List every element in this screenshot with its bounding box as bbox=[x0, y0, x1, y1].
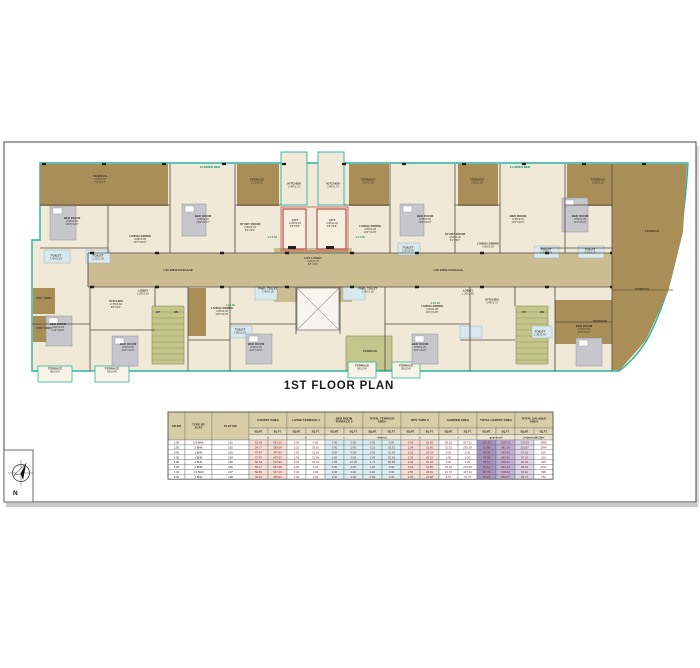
label-text: 102 bbox=[228, 446, 233, 450]
label-text: 1 BHK bbox=[194, 455, 202, 459]
label-text: DN bbox=[540, 310, 544, 314]
label-text: 1.5 BHK bbox=[193, 470, 204, 474]
north-compass: N bbox=[4, 450, 34, 502]
label-text: SQ.MT. bbox=[368, 431, 377, 434]
label-text: 33.91 bbox=[312, 460, 319, 464]
label-text: 616 bbox=[541, 455, 546, 459]
label-text: 463.39 bbox=[501, 455, 510, 459]
label-text: 0.00 bbox=[313, 470, 319, 474]
label-text: 1.50X2.40 bbox=[534, 333, 546, 337]
label-text: 137.34 bbox=[463, 470, 472, 474]
label-text: 20.40 bbox=[445, 465, 452, 469]
label-text: 0.00 bbox=[465, 460, 471, 464]
label-text: SQ.MT. bbox=[520, 431, 529, 434]
lift-door-2 bbox=[326, 246, 334, 249]
label-text: 101 bbox=[228, 441, 233, 445]
label-text: 2.46X1.75 bbox=[327, 185, 339, 189]
label-text: 0.00 bbox=[351, 450, 357, 454]
label-text: 3.00 bbox=[174, 450, 180, 454]
label-text: 3.66X3.05 bbox=[482, 245, 494, 249]
label-text: LIVING TERRACE 1 bbox=[292, 418, 320, 422]
label-text: 0.00 bbox=[370, 441, 376, 445]
label-text: 3.66X1.50 bbox=[592, 181, 604, 185]
label-text: 57.16 bbox=[521, 455, 528, 459]
label-text: 8'2"X8'1" bbox=[245, 228, 255, 232]
label-text: SQ.MT. bbox=[330, 431, 339, 434]
label-text: 51.10 bbox=[483, 475, 490, 479]
label-text: 2.94 bbox=[408, 446, 414, 450]
label-text: 31.65 bbox=[426, 446, 433, 450]
label-text: 16.95 bbox=[350, 460, 357, 464]
label-text: FLAT bbox=[195, 426, 203, 430]
label-text: 695.41 bbox=[501, 460, 510, 464]
label-text: 31.54 bbox=[388, 455, 395, 459]
label-text: 23.68 bbox=[426, 475, 433, 479]
label-text: 1034 bbox=[540, 465, 547, 469]
label-text: 175.53 bbox=[520, 441, 529, 445]
label-text: SQ.FT. bbox=[388, 431, 396, 434]
label-text: 1.15 M bbox=[430, 301, 440, 305]
label-text: 65.79 bbox=[483, 470, 490, 474]
label-text: AREA bbox=[530, 420, 539, 424]
top-box-left bbox=[281, 152, 307, 205]
label-text: 1.80 WIDE PASSAGE bbox=[163, 268, 193, 272]
label-text: 0.00 bbox=[313, 465, 319, 469]
label-text: 37.87 bbox=[255, 450, 262, 454]
label-text: 2.46X1.75 bbox=[486, 301, 498, 305]
label-text: 219.58 bbox=[463, 465, 472, 469]
label-text: 31.65 bbox=[426, 441, 433, 445]
label-text: 597.08 bbox=[273, 465, 282, 469]
label-text: 0.00 bbox=[351, 475, 357, 479]
label-text: 64.61 bbox=[483, 460, 490, 464]
label-text: 50.86 bbox=[388, 460, 395, 464]
label-text: UP bbox=[156, 310, 160, 314]
label-text: 881.38 bbox=[501, 446, 510, 450]
label-text: 2.5 BHK bbox=[193, 441, 204, 445]
label-text: 43.05 bbox=[483, 450, 490, 454]
label-text: 10'0"X10'6" bbox=[418, 220, 431, 224]
label-text: 2.93 bbox=[370, 450, 376, 454]
label-text: 55.37 bbox=[255, 465, 262, 469]
label-text: 0.00 bbox=[313, 475, 319, 479]
label-text: SQ.FT. bbox=[274, 431, 282, 434]
label-text: 616 bbox=[541, 450, 546, 454]
label-text: 0.00 bbox=[465, 450, 471, 454]
label-text: 2.94 bbox=[408, 460, 414, 464]
label-text: CARPET AREA bbox=[257, 418, 279, 422]
label-text: g=a+d+e+f bbox=[490, 437, 503, 440]
label-text: 8'2"X8'1" bbox=[450, 238, 460, 242]
label-text: 0.00 bbox=[370, 465, 376, 469]
label-text: 151.45 bbox=[482, 441, 491, 445]
label-text: 2.25 bbox=[408, 450, 414, 454]
label-text: 407.63 bbox=[273, 455, 282, 459]
label-text: 2.93 bbox=[294, 455, 300, 459]
label-text: 4.73 bbox=[370, 460, 376, 464]
label-text: 78.61 bbox=[483, 465, 490, 469]
label-text: 1.50X2.40 bbox=[402, 249, 414, 253]
label-text: DRY YARD 3 bbox=[411, 418, 429, 422]
label-text: 1.15 M bbox=[355, 235, 365, 239]
label-text: 0.00 bbox=[332, 446, 338, 450]
label-text: 0.00 bbox=[332, 455, 338, 459]
label-text: 37.87 bbox=[255, 455, 262, 459]
label-text: 1 BHK bbox=[194, 450, 202, 454]
label-text: 612.90 bbox=[273, 460, 282, 464]
label-text: 2.94 bbox=[408, 465, 414, 469]
north-label: N bbox=[13, 490, 18, 497]
label-text: 589.54 bbox=[273, 446, 282, 450]
label-text: 10'0"X10'6" bbox=[511, 220, 524, 224]
label-text: 2.94 bbox=[408, 441, 414, 445]
label-text: 10'0"X12'0" bbox=[121, 348, 134, 352]
label-text: AREA bbox=[378, 420, 387, 424]
lift-shaft-1 bbox=[283, 209, 306, 249]
label-text: 2.00 bbox=[174, 446, 180, 450]
label-text: 2.25 bbox=[408, 455, 414, 459]
label-text: 3.66X1.50 bbox=[362, 181, 374, 185]
label-text: h=(a+d+e)X1.33+f bbox=[524, 437, 545, 440]
label-text: 6.57 bbox=[446, 475, 452, 479]
label-text: 0.00 bbox=[446, 455, 452, 459]
label-text: 1.00 bbox=[174, 441, 180, 445]
label-text: 1.20X2.60 bbox=[137, 292, 149, 296]
label-text: TERRACE bbox=[635, 287, 650, 291]
label-text: 681.25 bbox=[273, 441, 282, 445]
label-text: 1.40X1.20 bbox=[262, 290, 274, 294]
label-text: 0.00 bbox=[294, 470, 300, 474]
label-text: 455.64 bbox=[273, 475, 282, 479]
label-text: SQ.MT. bbox=[292, 431, 301, 434]
label-text: TERRACE 2 bbox=[335, 420, 352, 424]
label-text: 1.15 M bbox=[225, 303, 235, 307]
label-text: 0.00 bbox=[351, 441, 357, 445]
label-text: SQ.FT. bbox=[426, 431, 434, 434]
label-text: 1.40X2.15 bbox=[50, 257, 62, 261]
label-text: 1.40X1.20 bbox=[362, 290, 374, 294]
lift-door-1 bbox=[288, 246, 296, 249]
label-text: 2.15X1.20 bbox=[92, 257, 104, 261]
label-text: 547.13 bbox=[273, 470, 282, 474]
label-text: 2.50 bbox=[408, 470, 414, 474]
label-text: 1.58 bbox=[332, 460, 338, 464]
label-text: SQ.FT. bbox=[350, 431, 358, 434]
top-box-right bbox=[318, 152, 344, 205]
label-text: 85.93 bbox=[521, 460, 528, 464]
label-text: 0.00 bbox=[351, 446, 357, 450]
label-text: 0.00 bbox=[294, 441, 300, 445]
label-text: BELOW bbox=[50, 370, 60, 374]
label-text: TOTAL CARPET AREA bbox=[480, 418, 513, 422]
label-text: SQ.MT. bbox=[254, 431, 263, 434]
label-text: 10'0"X10'6" bbox=[413, 348, 426, 352]
label-text: 0.00 bbox=[294, 475, 300, 479]
label-text: 407.63 bbox=[273, 450, 282, 454]
label-text: 54.77 bbox=[255, 446, 262, 450]
label-text: FLAT NO bbox=[224, 424, 237, 428]
label-text: 10'0"X14'8" bbox=[215, 312, 228, 316]
label-text: SQ.FT. bbox=[502, 431, 510, 434]
label-text: 3.15 bbox=[370, 446, 376, 450]
label-text: d=(b+c) bbox=[377, 437, 386, 440]
label-text: 85.22 bbox=[445, 441, 452, 445]
label-text: UP bbox=[522, 310, 526, 314]
label-text: 708.06 bbox=[501, 470, 510, 474]
label-text: 0.00 bbox=[351, 455, 357, 459]
label-text: 1.20X2.60 bbox=[462, 292, 474, 296]
label-text: 917.31 bbox=[463, 441, 472, 445]
label-text: 0.00 bbox=[465, 455, 471, 459]
label-text: 81.88 bbox=[483, 446, 490, 450]
label-text: 31.54 bbox=[312, 450, 319, 454]
label-text: 1.80 WIDE PASSAGE bbox=[433, 268, 463, 272]
label-text: SQ.FT. bbox=[312, 431, 320, 434]
label-text: FLOWER BED bbox=[200, 165, 221, 169]
label-text: 42.33 bbox=[255, 475, 262, 479]
label-text: 4.00 bbox=[174, 455, 180, 459]
label-text: SQ.MT. bbox=[444, 431, 453, 434]
label-text: 2.20 bbox=[408, 475, 414, 479]
label-text: 1885 bbox=[540, 441, 547, 445]
label-text: 26.91 bbox=[426, 470, 433, 474]
label-text: 9'10"X10'0" bbox=[51, 328, 64, 332]
label-text: 10'0"X10'6" bbox=[196, 220, 209, 224]
label-text: 108 bbox=[228, 475, 233, 479]
label-text: 10'0"X14'8" bbox=[425, 310, 438, 314]
label-text: 2.15X1.20 bbox=[584, 251, 596, 255]
label-text: DRY YARD bbox=[36, 296, 52, 300]
lift-shaft-2 bbox=[317, 209, 346, 249]
label-text: 83.42 bbox=[521, 470, 528, 474]
label-text: 56.94 bbox=[255, 460, 262, 464]
label-text: 846.13 bbox=[501, 465, 510, 469]
label-text: TERRACE bbox=[593, 319, 608, 323]
label-text: 0.00 bbox=[332, 475, 338, 479]
label-text: GARDEN AREA bbox=[447, 418, 470, 422]
label-text: 31.54 bbox=[312, 455, 319, 459]
label-text: 751 bbox=[541, 475, 546, 479]
label-text: 0.00 bbox=[294, 465, 300, 469]
label-text: SQ.FT. bbox=[464, 431, 472, 434]
label-text: 6'9"X6'8" bbox=[327, 224, 337, 228]
label-text: 2 BHK bbox=[194, 446, 202, 450]
label-text: 8.00 bbox=[174, 475, 180, 479]
label-text: 1.40X2.15 bbox=[540, 251, 552, 255]
label-text: BELOW bbox=[107, 370, 117, 374]
label-text: 5.00 bbox=[174, 460, 180, 464]
label-text: 898 bbox=[541, 470, 546, 474]
label-text: 230.38 bbox=[463, 446, 472, 450]
label-text: 104 bbox=[228, 455, 233, 459]
label-text: 24.22 bbox=[426, 450, 433, 454]
label-text: 43.05 bbox=[483, 455, 490, 459]
label-text: 33.91 bbox=[312, 446, 319, 450]
label-text: 12'0"X10'0" bbox=[133, 240, 146, 244]
building: FLOWER BEDFLOWER BEDTERRACE2.13X4.157'0"… bbox=[32, 152, 688, 382]
label-text: 24.22 bbox=[426, 455, 433, 459]
label-text: SR.NO bbox=[172, 424, 182, 428]
label-text: BELOW bbox=[401, 367, 411, 371]
label-text: 0.00 bbox=[446, 450, 452, 454]
label-text: 31.65 bbox=[426, 465, 433, 469]
label-text: 0.00 bbox=[389, 465, 395, 469]
label-text: 10'0"X10'6" bbox=[249, 348, 262, 352]
page-title: 1ST FLOOR PLAN bbox=[284, 380, 394, 392]
label-text: 0.00 bbox=[370, 470, 376, 474]
drawing-sheet-page: FLOWER BEDFLOWER BEDTERRACE2.13X4.157'0"… bbox=[0, 0, 700, 668]
sheet-shadow-bottom bbox=[6, 503, 698, 507]
label-text: 0.00 bbox=[332, 450, 338, 454]
label-text: 31.54 bbox=[388, 450, 395, 454]
label-text: 63.29 bbox=[255, 441, 262, 445]
label-text: 10'0"X12'0" bbox=[65, 222, 78, 226]
label-text: 3.15 bbox=[294, 460, 300, 464]
label-text: 0.00 bbox=[351, 465, 357, 469]
label-text: TERRACE bbox=[645, 229, 660, 233]
label-text: 0.00 bbox=[332, 470, 338, 474]
floor-plan-canvas: FLOWER BEDFLOWER BEDTERRACE2.13X4.157'0"… bbox=[0, 0, 700, 668]
label-text: 50.83 bbox=[255, 470, 262, 474]
label-text: 1630.21 bbox=[500, 441, 511, 445]
label-text: 2 BHK bbox=[194, 465, 202, 469]
label-text: 463.39 bbox=[501, 450, 510, 454]
label-text: 7'0"X13'7" bbox=[94, 180, 106, 184]
label-text: 10'0"X11'0" bbox=[573, 220, 586, 224]
label-text: 0.00 bbox=[313, 441, 319, 445]
label-text: 1.15 M bbox=[267, 235, 277, 239]
label-text: FLOWER BED bbox=[510, 165, 531, 169]
label-text: 2.60X1.50 bbox=[471, 181, 483, 185]
label-text: DN bbox=[174, 310, 178, 314]
label-text: 7.00 bbox=[174, 470, 180, 474]
label-text: 0.00 bbox=[332, 465, 338, 469]
label-text: 10'0"X11'0" bbox=[577, 330, 590, 334]
label-text: 106 bbox=[228, 465, 233, 469]
label-text: SQ.MT. bbox=[482, 431, 491, 434]
label-text: 0.00 bbox=[351, 470, 357, 474]
label-text: 1 BHK bbox=[194, 475, 202, 479]
label-text: 0.00 bbox=[389, 441, 395, 445]
label-text: SQ.MT. bbox=[406, 431, 415, 434]
label-text: 3.15 bbox=[294, 446, 300, 450]
label-text: 33.91 bbox=[388, 446, 395, 450]
label-text: 2.93 bbox=[370, 455, 376, 459]
label-text: 2 BHK bbox=[194, 460, 202, 464]
label-text: 0.00 bbox=[332, 441, 338, 445]
label-text: 12.76 bbox=[445, 470, 452, 474]
label-text: 2.93 bbox=[294, 450, 300, 454]
label-text: BELOW bbox=[357, 367, 367, 371]
label-text: SQ.FT. bbox=[540, 431, 548, 434]
label-text: 6'9"X6'8" bbox=[290, 224, 300, 228]
label-text: 6.00 bbox=[174, 465, 180, 469]
label-text: 8'6"X9'0" bbox=[308, 262, 318, 266]
label-text: 96.04 bbox=[521, 465, 528, 469]
label-text: 0.00 bbox=[370, 475, 376, 479]
label-text: 550.07 bbox=[501, 475, 510, 479]
label-text: 925 bbox=[541, 460, 546, 464]
label-text: 9'0"X6'0" bbox=[111, 305, 121, 309]
label-text: 101.67 bbox=[520, 446, 529, 450]
label-text: 70.75 bbox=[464, 475, 471, 479]
label-text: 69.77 bbox=[521, 475, 528, 479]
label-text: 21.32 bbox=[445, 446, 452, 450]
label-text: 31.65 bbox=[426, 460, 433, 464]
label-text: 57.16 bbox=[521, 450, 528, 454]
label-text: DRY YARD bbox=[36, 326, 52, 330]
label-text: 0.00 bbox=[389, 475, 395, 479]
label-text: 0.00 bbox=[389, 470, 395, 474]
label-text: 1094 bbox=[540, 446, 547, 450]
label-text: 10'0"X14'8" bbox=[363, 230, 376, 234]
label-text: TERRACE bbox=[363, 349, 378, 353]
label-text: 0.00 bbox=[446, 460, 452, 464]
label-text: 2.13X3.15 bbox=[251, 181, 263, 185]
label-text: 103 bbox=[228, 450, 233, 454]
label-text: 105 bbox=[228, 460, 233, 464]
area-schedule-table: SR.NOTYPE OFFLATFLAT NOCARPET AREASQ.MT.… bbox=[168, 412, 553, 479]
label-text: 1.80X1.20 bbox=[234, 331, 246, 335]
label-text: 107 bbox=[228, 470, 233, 474]
label-text: 2.46X1.75 bbox=[288, 185, 300, 189]
